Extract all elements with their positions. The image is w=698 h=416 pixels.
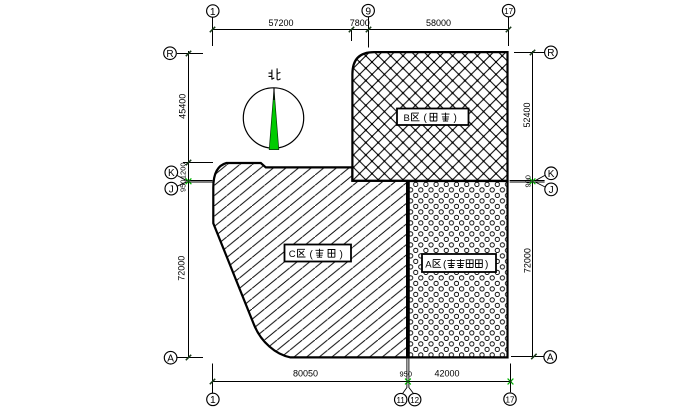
svg-text:C: C	[289, 249, 296, 260]
svg-text:17: 17	[504, 7, 513, 16]
svg-text:7800: 7800	[350, 18, 370, 28]
svg-text:1: 1	[210, 7, 216, 18]
svg-text:900: 900	[524, 175, 533, 188]
svg-text:950: 950	[400, 370, 413, 379]
svg-text:950: 950	[178, 180, 187, 193]
svg-text:B: B	[404, 113, 410, 124]
svg-text:A: A	[425, 259, 432, 270]
svg-text:80050: 80050	[293, 369, 318, 379]
svg-text:9: 9	[365, 6, 371, 17]
svg-text:A: A	[547, 353, 554, 364]
svg-text:1: 1	[210, 395, 216, 406]
svg-text:R: R	[547, 48, 554, 59]
svg-text:A: A	[167, 353, 174, 364]
svg-text:52400: 52400	[522, 102, 532, 127]
svg-text:72000: 72000	[176, 256, 186, 281]
svg-text:): )	[454, 113, 457, 124]
svg-text:42000: 42000	[434, 369, 459, 379]
svg-text:J: J	[169, 184, 174, 195]
svg-text:57200: 57200	[268, 18, 293, 28]
svg-text:45400: 45400	[177, 94, 187, 119]
svg-text:): )	[485, 260, 488, 271]
svg-text:11: 11	[397, 396, 406, 405]
svg-text:K: K	[168, 168, 175, 179]
svg-text:72000: 72000	[523, 248, 533, 273]
svg-text:1200: 1200	[178, 162, 187, 179]
svg-text:R: R	[166, 49, 173, 60]
svg-text:17: 17	[506, 395, 515, 404]
svg-text:K: K	[548, 169, 555, 180]
svg-text:12: 12	[410, 396, 419, 405]
svg-text:58000: 58000	[426, 18, 451, 28]
svg-text:J: J	[549, 185, 554, 196]
svg-text:): )	[340, 250, 343, 261]
